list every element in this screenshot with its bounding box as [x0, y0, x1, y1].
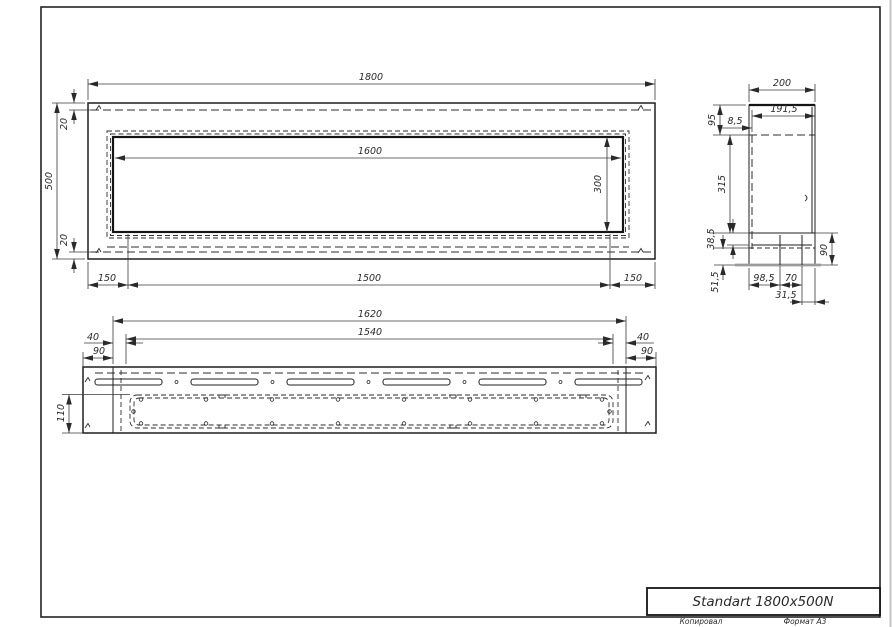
dim-bottom-left-flange: 90 — [93, 346, 105, 357]
side-view-dimensions: 200 191,5 8,5 95 315 38,5 51,5 90 — [706, 78, 838, 305]
weld-mark-front-bottom-right — [638, 249, 643, 254]
dim-side-lower-lip: 38,5 — [706, 228, 717, 249]
dim-front-left-margin: 150 — [98, 273, 116, 284]
sheet-format-label: Формат А3 — [784, 617, 827, 626]
weld-mark-front-top-right — [638, 106, 643, 111]
dim-side-top-section: 95 — [707, 114, 718, 126]
weld-mark-front-top-left — [96, 106, 101, 111]
dim-side-hole-pitch: 70 — [785, 273, 797, 284]
weld-mark-bottom-top-right — [645, 376, 650, 381]
dim-side-inner-depth: 191,5 — [770, 104, 797, 115]
title-block: Standart 1800x500N Копировал Формат А3 — [647, 588, 880, 626]
weld-mark-bottom-top-left — [85, 378, 90, 383]
sheet-frame — [41, 0, 891, 627]
dim-bottom-tray-span: 1540 — [358, 327, 382, 338]
copied-by-label: Копировал — [680, 617, 723, 626]
dim-bottom-tray-depth: 110 — [56, 404, 67, 422]
bottom-view — [83, 367, 656, 433]
dim-side-base-drop: 51,5 — [710, 271, 721, 292]
dim-side-depth: 200 — [773, 78, 791, 89]
dim-front-opening-height: 300 — [593, 175, 604, 193]
dim-bottom-right-gap: 40 — [637, 332, 649, 343]
front-view — [88, 103, 655, 259]
dim-side-edge-offset: 31,5 — [775, 290, 796, 301]
dim-front-center-span: 1500 — [357, 273, 381, 284]
dim-side-wall-offset: 8,5 — [727, 116, 742, 127]
side-view — [735, 105, 821, 265]
dim-bottom-right-flange: 90 — [641, 346, 653, 357]
dim-front-width: 1800 — [359, 72, 383, 83]
dim-front-right-margin: 150 — [624, 273, 642, 284]
vent-slots — [95, 379, 642, 385]
burner-tray — [130, 395, 613, 428]
clip-mark-side — [805, 195, 807, 201]
drawing-title: Standart 1800x500N — [693, 594, 834, 610]
weld-mark-bottom-bottom-right — [645, 422, 650, 427]
dim-bottom-mount-span: 1620 — [358, 309, 382, 320]
dim-side-middle-section: 315 — [717, 175, 728, 193]
dim-front-height: 500 — [44, 172, 55, 190]
weld-mark-bottom-bottom-left — [85, 424, 90, 429]
drawing-sheet: 1800 500 20 20 1600 300 150 1500 150 — [0, 0, 892, 627]
dim-side-base-height: 90 — [819, 244, 830, 256]
bottom-view-dimensions: 1620 1540 40 90 40 90 110 — [56, 309, 656, 433]
dim-front-bottom-inset: 20 — [59, 234, 70, 246]
dim-bottom-left-gap: 40 — [87, 332, 99, 343]
front-view-dimensions: 1800 500 20 20 1600 300 150 1500 150 — [44, 72, 655, 289]
drawing-canvas: 1800 500 20 20 1600 300 150 1500 150 — [0, 0, 892, 627]
dim-front-top-inset: 20 — [59, 118, 70, 130]
dim-side-base-length: 98,5 — [753, 273, 774, 284]
dim-front-opening-width: 1600 — [358, 146, 382, 157]
